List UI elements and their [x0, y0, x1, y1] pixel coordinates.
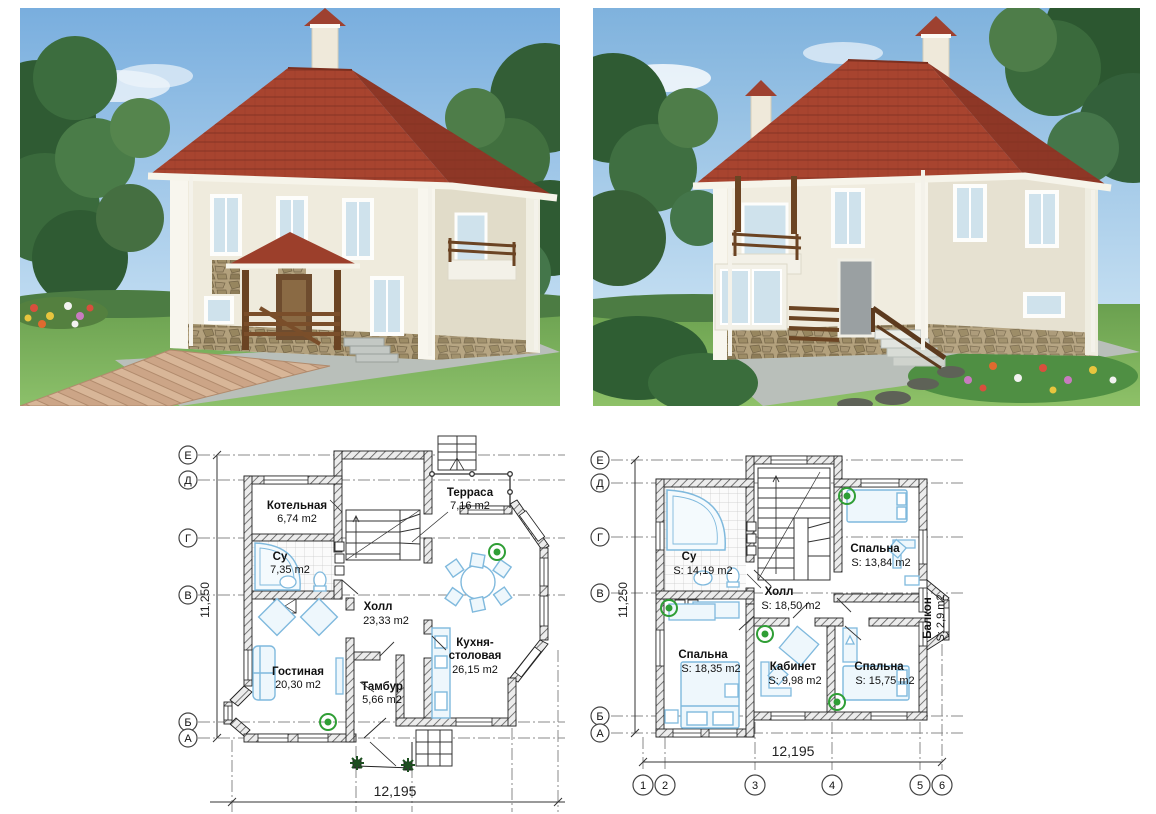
room-label: Су: [682, 551, 697, 563]
room-area: 20,30 m2: [275, 679, 321, 691]
room-label: Холл: [364, 601, 393, 613]
floor-plan-first: Е Д Г В Б А 11,250: [160, 430, 580, 814]
dim-width-label: 12,195: [374, 783, 417, 799]
axis-row-label: Д: [596, 478, 604, 490]
first-floor-plan-svg: Е Д Г В Б А 11,250: [160, 430, 580, 814]
porch-side-stair: [416, 730, 452, 766]
second-floor-window: [831, 188, 865, 248]
axis-col-label: 3: [752, 780, 758, 792]
room-label: Холл: [765, 586, 794, 598]
axis-col-label: 5: [917, 780, 923, 792]
house-project-sheet: Е Д Г В Б А 11,250: [0, 0, 1156, 814]
axis-col-label: 4: [829, 780, 835, 792]
room-label: Спальна: [850, 543, 900, 555]
axis-row-label: Г: [597, 532, 603, 544]
bed-icon: [847, 490, 907, 522]
room-label: Кабинет: [770, 661, 817, 673]
stairs-icon: [758, 468, 830, 580]
rear-door: [839, 260, 873, 336]
room-area: 7,16 m2: [450, 500, 490, 512]
room-area: 7,35 m2: [270, 564, 310, 576]
room-area: S: 2,9 m2: [935, 594, 947, 641]
terrace-stair: [438, 436, 476, 470]
stairs-icon: [346, 510, 420, 560]
axis-col-label: 6: [939, 780, 945, 792]
room-area: S: 13,84 m2: [851, 557, 910, 569]
tv-cabinet-icon: [336, 658, 343, 694]
room-area: 5,66 m2: [362, 694, 402, 706]
room-area: S: 15,75 m2: [855, 675, 914, 687]
axis-col-label: 1: [640, 780, 646, 792]
axis-row-label: Б: [184, 717, 191, 729]
corner-window-box: [715, 264, 787, 330]
room-area: S: 18,35 m2: [681, 663, 740, 675]
room-label: Терраса: [447, 487, 494, 499]
front-render-svg: [20, 8, 560, 406]
axis-row-label: Д: [184, 475, 192, 487]
dim-height-label: 11,250: [198, 582, 212, 618]
axis-row-label: В: [596, 588, 603, 600]
room-label: Спальна: [678, 649, 728, 661]
room-area: S: 18,50 m2: [761, 600, 820, 612]
axis-row-label: А: [184, 733, 192, 745]
second-floor-plan-svg: Е Д Г В Б А 11,250: [575, 430, 980, 814]
room-label: Балкон: [922, 597, 934, 639]
toilet-icon: [314, 572, 326, 591]
room-label: столовая: [449, 650, 502, 662]
room-label: Спальна: [854, 661, 904, 673]
room-area: 23,33 m2: [363, 615, 409, 627]
dim-width-label: 12,195: [772, 743, 815, 759]
axis-row-label: В: [184, 590, 191, 602]
room-label: Су: [273, 551, 288, 563]
room-area: 6,74 m2: [277, 513, 317, 525]
axis-row-label: Б: [596, 711, 603, 723]
room-area: S: 14,19 m2: [673, 565, 732, 577]
axis-row-label: Г: [185, 533, 191, 545]
sink-icon: [280, 576, 296, 588]
room-label: Котельная: [267, 500, 327, 512]
render-rear-view: [593, 8, 1140, 406]
render-front-view: [20, 8, 560, 406]
room-label: Кухня-: [456, 637, 494, 649]
room-label: Гостиная: [272, 666, 324, 678]
axis-row-label: А: [596, 728, 604, 740]
axis-col-label: 2: [662, 780, 668, 792]
flue-channels: [747, 522, 756, 555]
dim-height-label: 11,250: [616, 582, 630, 618]
kitchen-counter-icon: [432, 628, 450, 718]
axis-row-label: Е: [596, 455, 603, 467]
room-area: S: 9,98 m2: [768, 675, 821, 687]
floor-plan-second: Е Д Г В Б А 11,250: [575, 430, 980, 814]
axis-row-label: Е: [184, 450, 191, 462]
rear-render-svg: [593, 8, 1140, 406]
room-area: 26,15 m2: [452, 664, 498, 676]
shelf-icon: [843, 628, 857, 662]
